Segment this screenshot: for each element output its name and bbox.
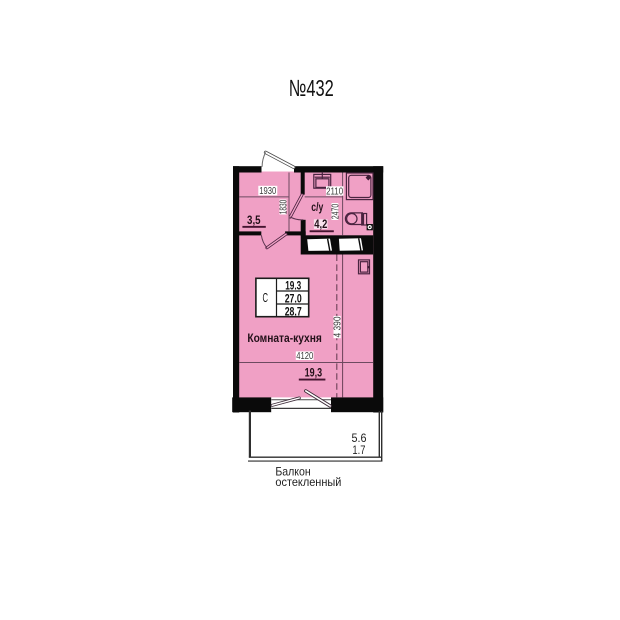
svg-text:27.0: 27.0 (285, 292, 302, 306)
svg-text:19,3: 19,3 (305, 366, 323, 380)
svg-text:4,2: 4,2 (314, 217, 327, 231)
svg-text:1930: 1930 (259, 186, 276, 197)
svg-text:28.7: 28.7 (285, 305, 302, 319)
svg-text:19.3: 19.3 (285, 279, 301, 293)
svg-text:1830: 1830 (279, 199, 290, 214)
svg-text:Комната-кухня: Комната-кухня (247, 331, 322, 345)
svg-text:3,5: 3,5 (247, 213, 261, 227)
svg-text:2470: 2470 (330, 203, 341, 219)
svg-text:с/у: с/у (311, 200, 323, 214)
svg-text:4 390: 4 390 (333, 316, 344, 337)
svg-text:2110: 2110 (326, 186, 343, 197)
svg-text:1.7: 1.7 (352, 443, 365, 457)
svg-text:4120: 4120 (296, 351, 313, 362)
svg-text:№432: №432 (289, 75, 334, 101)
svg-text:С: С (263, 290, 269, 305)
svg-text:остекленный: остекленный (275, 475, 341, 489)
